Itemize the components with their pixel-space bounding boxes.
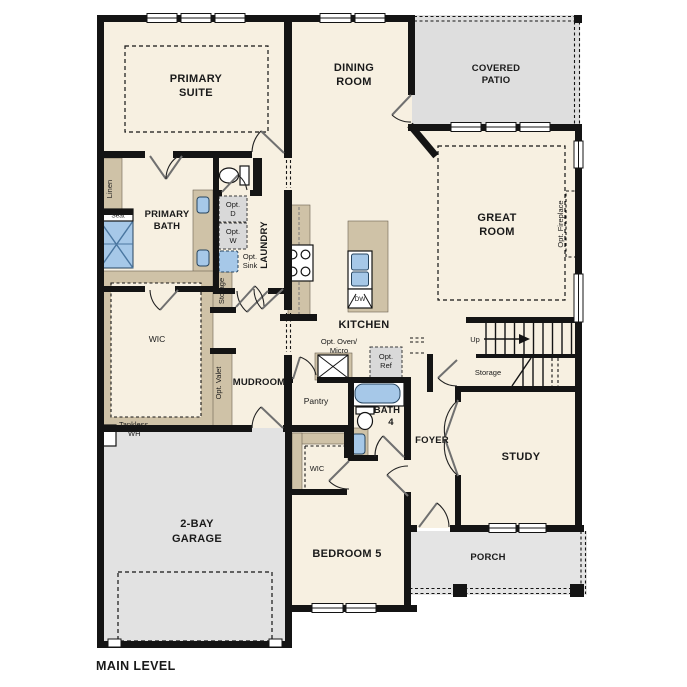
label-covered-patio: COVERED — [472, 63, 520, 74]
window — [574, 274, 583, 322]
porch-floor — [404, 531, 587, 595]
svg-text:D: D — [230, 209, 236, 218]
window — [355, 14, 385, 23]
svg-text:SUITE: SUITE — [179, 87, 213, 99]
label-opt-oven-micro: Opt. Oven/ — [321, 337, 358, 346]
label-opt-valet: Opt. Valet — [214, 366, 223, 400]
svg-text:Micro: Micro — [330, 346, 348, 355]
bath4-tub — [351, 381, 404, 406]
svg-text:4: 4 — [388, 417, 394, 428]
svg-text:ROOM: ROOM — [479, 226, 514, 238]
window — [181, 14, 211, 23]
label-kitchen: KITCHEN — [339, 319, 390, 331]
porch-post — [453, 584, 467, 597]
label-bedroom5: BEDROOM 5 — [312, 548, 381, 560]
window — [215, 14, 245, 23]
label-up: Up — [470, 335, 480, 344]
toilet-bath4 — [356, 407, 374, 430]
vanity-sink-1 — [197, 197, 209, 213]
svg-text:WH: WH — [128, 429, 141, 438]
label-storage-stairs: Storage — [475, 368, 501, 377]
label-mudroom: MUDROOM — [233, 377, 286, 388]
window — [346, 604, 376, 613]
label-opt-w: Opt. — [226, 227, 240, 236]
svg-text:Ref: Ref — [380, 361, 393, 370]
window — [520, 123, 550, 132]
label-dining-room: DINING — [334, 62, 374, 74]
svg-text:PATIO: PATIO — [482, 75, 511, 86]
label-opt-sink: Opt. — [243, 252, 257, 261]
label-opt-fireplace: Opt. Fireplace — [556, 200, 565, 247]
label-wic-bedroom5: WIC — [310, 464, 325, 473]
label-seat: Seat — [111, 213, 125, 220]
window — [320, 14, 351, 23]
wic5-shelf-left — [292, 433, 302, 490]
label-wic-primary: WIC — [149, 334, 166, 344]
porch-post — [570, 584, 584, 597]
window — [519, 524, 546, 533]
opt-laundry-sink — [219, 251, 238, 272]
svg-text:GARAGE: GARAGE — [172, 533, 222, 545]
label-study: STUDY — [502, 451, 541, 463]
label-dw: DW — [355, 296, 367, 303]
plan-title: MAIN LEVEL — [96, 659, 176, 673]
label-pantry: Pantry — [304, 396, 329, 406]
svg-text:Sink: Sink — [243, 261, 258, 270]
floor-plan: PRIMARY SUITE DINING ROOM COVERED PATIO … — [0, 0, 687, 687]
label-bath4: BATH — [374, 405, 400, 416]
label-opt-ref: Opt. — [379, 352, 393, 361]
label-storage-hall: Storage — [217, 278, 226, 304]
island-sink — [348, 251, 372, 289]
garage-door-notch — [108, 639, 121, 647]
svg-text:W: W — [229, 236, 237, 245]
window — [312, 604, 343, 613]
window — [451, 123, 481, 132]
label-tankless-wh: Tankless — [119, 420, 148, 429]
label-linen: Linen — [105, 180, 114, 198]
label-great-room: GREAT — [477, 212, 516, 224]
window — [574, 141, 583, 168]
vanity-sink-2 — [197, 250, 209, 266]
opt-oven-box — [318, 355, 348, 378]
svg-text:ROOM: ROOM — [336, 76, 371, 88]
label-laundry: LAUNDRY — [259, 221, 270, 269]
window — [486, 123, 516, 132]
window — [147, 14, 177, 23]
window — [489, 524, 516, 533]
label-garage: 2-BAY — [180, 518, 214, 530]
label-opt-d: Opt. — [226, 200, 240, 209]
garage-door-notch — [269, 639, 282, 647]
label-primary-suite: PRIMARY — [170, 73, 223, 85]
label-porch: PORCH — [470, 552, 505, 563]
floor-plan-svg: PRIMARY SUITE DINING ROOM COVERED PATIO … — [0, 0, 687, 687]
label-primary-bath: PRIMARY — [145, 209, 190, 220]
label-foyer: FOYER — [415, 435, 449, 446]
svg-text:BATH: BATH — [154, 221, 180, 232]
